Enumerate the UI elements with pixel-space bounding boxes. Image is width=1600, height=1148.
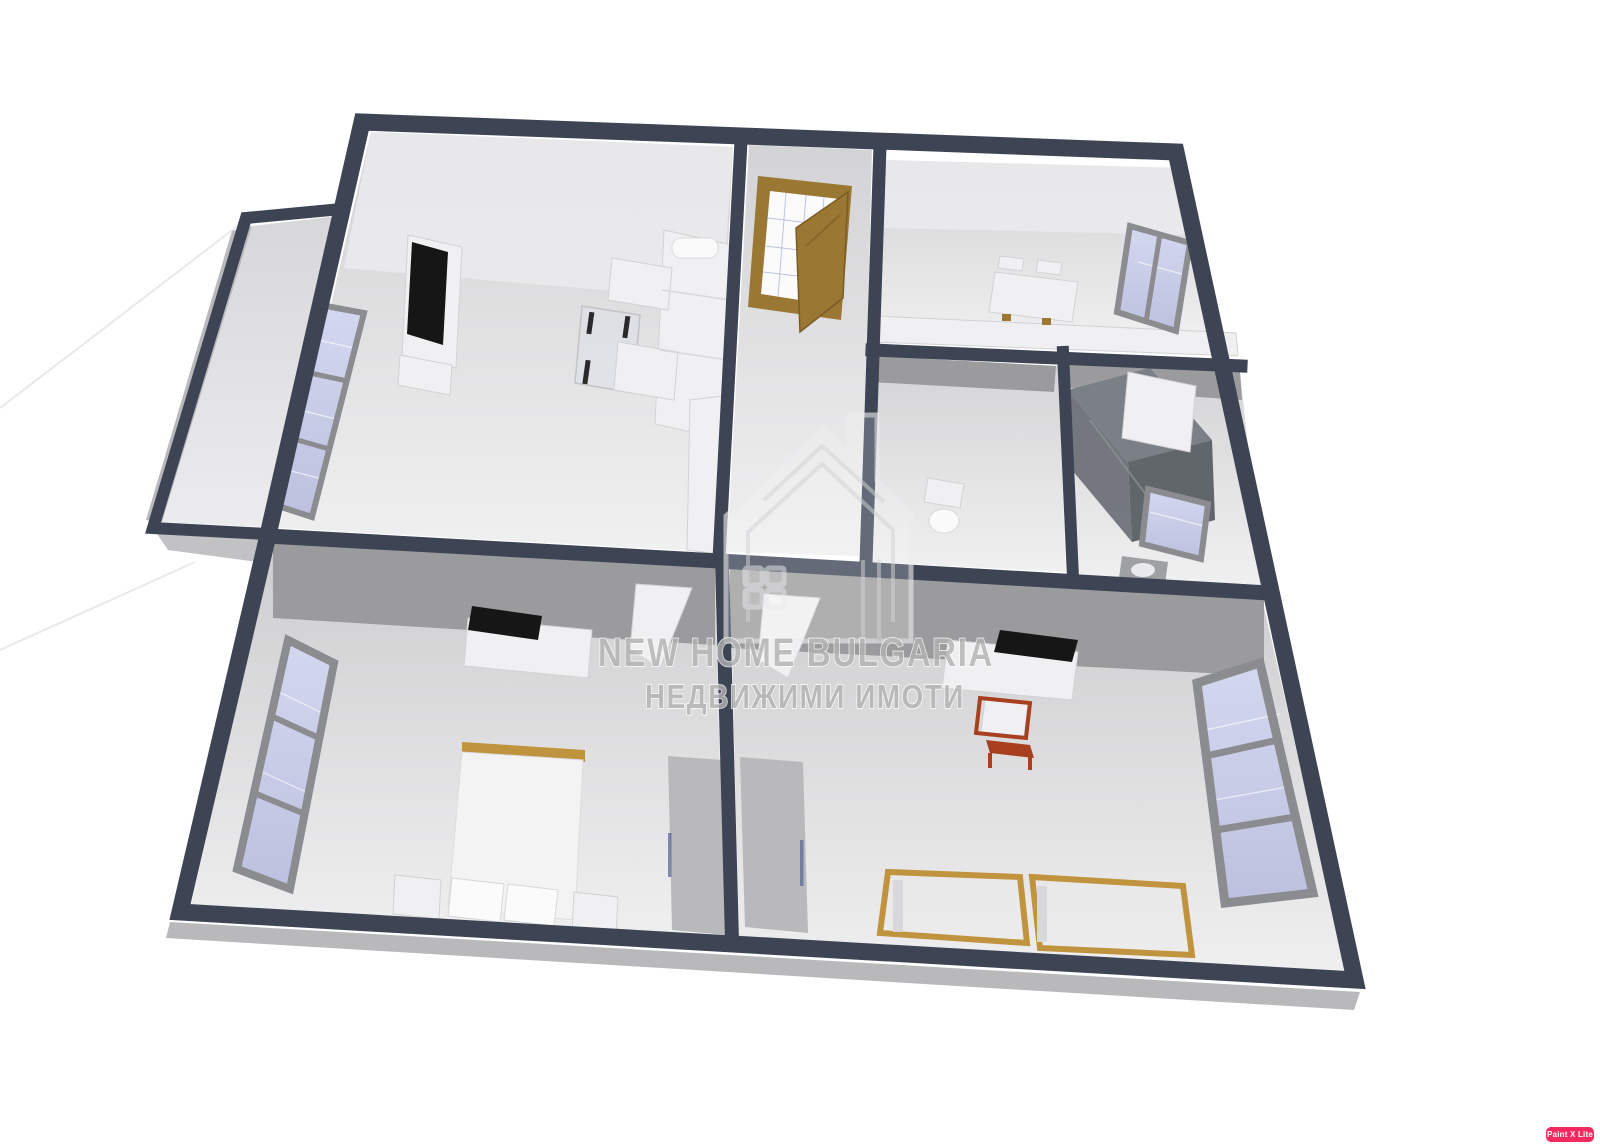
paint-x-lite-label: Paint X Lite bbox=[1547, 1130, 1593, 1139]
chair bbox=[998, 256, 1024, 271]
watermark-line2: НЕДВИЖИМИ ИМОТИ bbox=[645, 678, 965, 715]
watermark-line1: NEW HOME BULGARIA bbox=[598, 631, 994, 675]
pillow bbox=[504, 884, 558, 926]
paint-x-lite-badge: Paint X Lite bbox=[1546, 1127, 1594, 1142]
entrance-door bbox=[748, 176, 852, 332]
nightstand bbox=[393, 875, 441, 919]
floorplan-image: NEW HOME BULGARIA НЕДВИЖИМИ ИМОТИ Paint … bbox=[0, 0, 1600, 1148]
kitchen-window bbox=[1117, 226, 1190, 331]
pillow bbox=[448, 878, 504, 922]
faint-line bbox=[0, 562, 195, 650]
wardrobe bbox=[668, 756, 726, 935]
bed-frame bbox=[880, 872, 1027, 943]
chair bbox=[1036, 260, 1062, 275]
kitchen-far-wall bbox=[884, 160, 1193, 235]
floorplan-render: NEW HOME BULGARIA НЕДВИЖИМИ ИМОТИ bbox=[0, 0, 1600, 1148]
tv-icon bbox=[407, 242, 448, 345]
bed-frame bbox=[1032, 877, 1192, 955]
washer-box bbox=[1122, 372, 1196, 452]
bathroom-window bbox=[1142, 489, 1208, 559]
wardrobe bbox=[740, 757, 808, 933]
room-entry bbox=[748, 176, 852, 332]
